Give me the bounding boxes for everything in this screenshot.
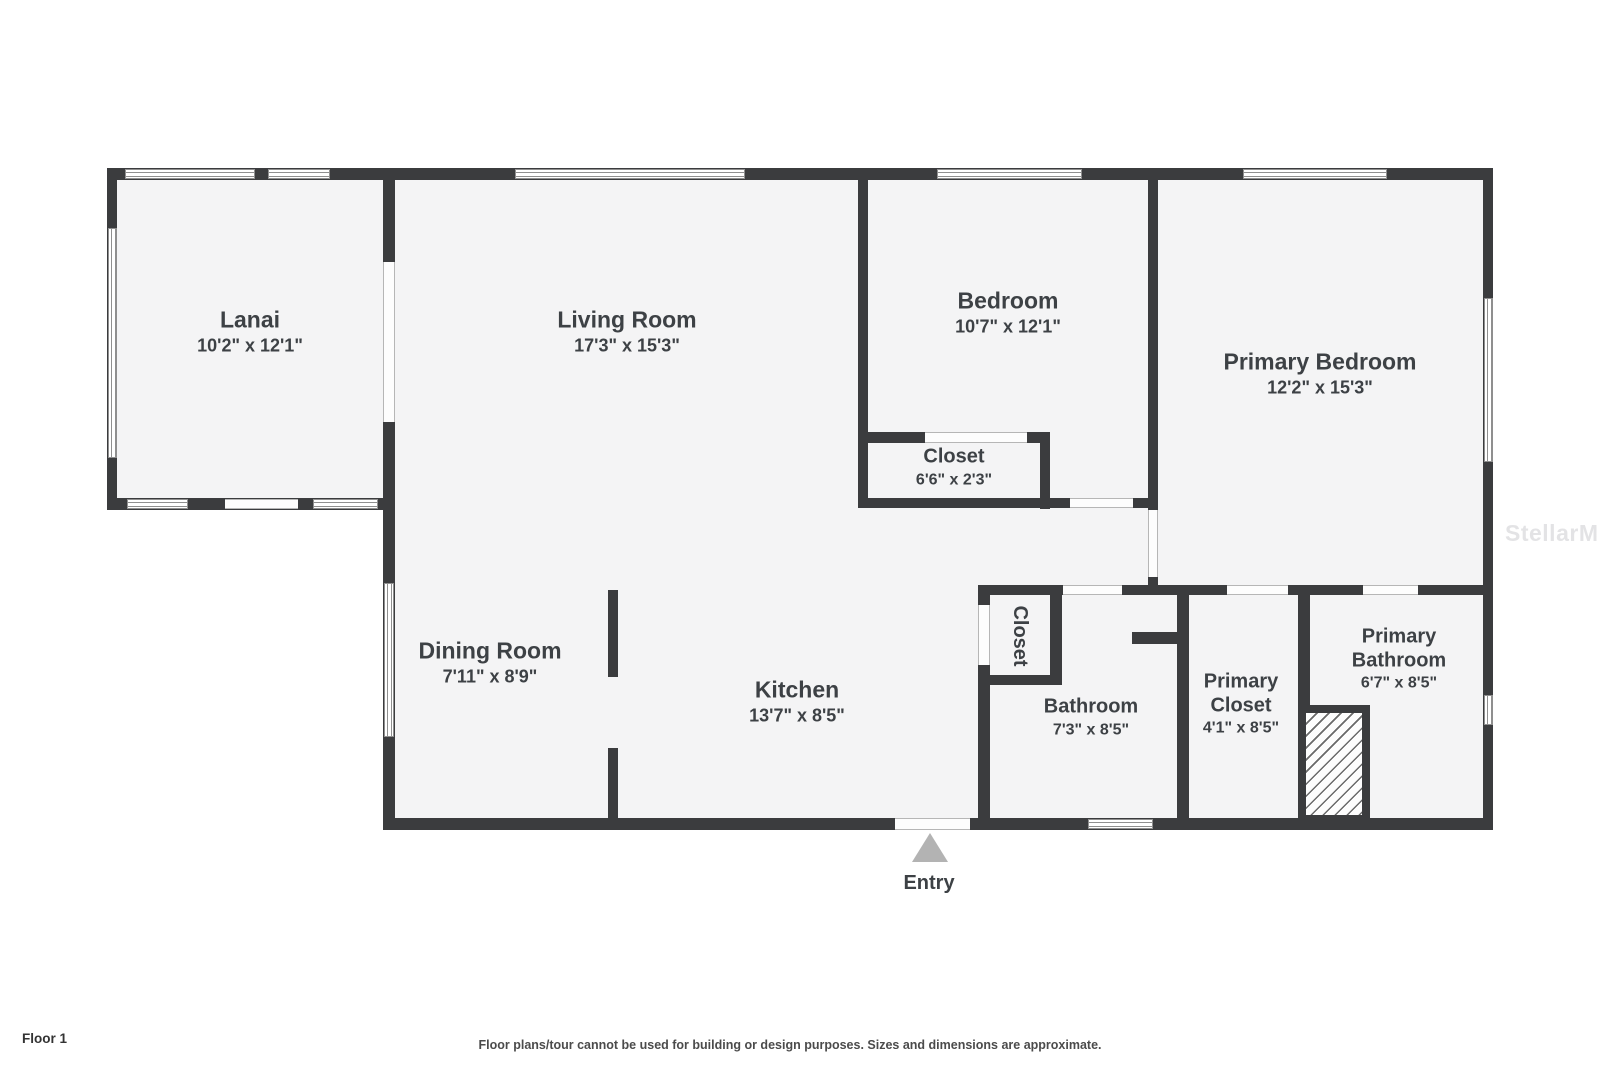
bedroom-name: Bedroom	[955, 287, 1061, 314]
primary-bedroom-dims: 12'2" x 15'3"	[1223, 375, 1416, 399]
bathroom-door	[1063, 585, 1122, 595]
dining-window-left	[384, 583, 394, 737]
shower-hatch	[1298, 705, 1370, 823]
primary-bathroom-name: Primary Bathroom	[1334, 626, 1464, 673]
living-room-dims: 17'3" x 15'3"	[557, 333, 696, 357]
wall-bathroom-stub	[1132, 632, 1178, 644]
bathroom-dims: 7'3" x 8'5"	[1044, 719, 1138, 741]
bathroom-window-bottom	[1088, 819, 1153, 829]
entry-label: Entry	[903, 872, 954, 895]
wall-living-bedroom	[858, 180, 868, 508]
lanai-label: Lanai 10'2" x 12'1"	[197, 306, 303, 357]
lanai-window-top-2	[268, 169, 330, 179]
primary-bedroom-name: Primary Bedroom	[1223, 348, 1416, 375]
entry-opening	[895, 818, 970, 830]
dining-room-name: Dining Room	[418, 637, 561, 664]
stellar-mls-watermark: StellarMLS	[1505, 520, 1600, 547]
floor-plan: Lanai 10'2" x 12'1" Living Room 17'3" x …	[0, 0, 1600, 1066]
bedroom-door	[1070, 498, 1133, 508]
bathroom-label: Bathroom 7'3" x 8'5"	[1044, 695, 1138, 740]
kitchen-dims: 13'7" x 8'5"	[749, 703, 845, 727]
primary-closet-door	[1227, 585, 1288, 595]
lanai-slider-opening	[383, 262, 395, 422]
primary-bedroom-door	[1148, 510, 1158, 577]
living-room-name: Living Room	[557, 306, 696, 333]
bedroom-dims: 10'7" x 12'1"	[955, 314, 1061, 338]
bedroom-closet-label: Closet 6'6" x 2'3"	[916, 445, 992, 490]
kitchen-label: Kitchen 13'7" x 8'5"	[749, 676, 845, 727]
wall-east	[1483, 168, 1493, 830]
primary-closet-name: Primary Closet	[1186, 671, 1296, 718]
primary-bedroom-label: Primary Bedroom 12'2" x 15'3"	[1223, 348, 1416, 399]
living-window-top	[515, 169, 745, 179]
entry-arrow-icon	[912, 833, 948, 862]
wall-kitchen-stub-lower	[608, 748, 618, 818]
wall-hallcloset-right	[1050, 585, 1062, 685]
wall-bedroom-primary	[1148, 180, 1158, 510]
lanai-window-top-1	[125, 169, 255, 179]
hall-closet-door	[978, 605, 990, 665]
living-room-label: Living Room 17'3" x 15'3"	[557, 306, 696, 357]
hall-closet-label: Closet	[1007, 605, 1031, 666]
hall-closet-name: Closet	[1007, 605, 1031, 666]
lanai-bottom-window-2	[313, 499, 378, 509]
bedroom-closet-name: Closet	[916, 445, 992, 469]
lanai-window-left	[108, 228, 117, 458]
dining-room-dims: 7'11" x 8'9"	[418, 664, 561, 688]
bedroom-window-top	[937, 169, 1082, 179]
primary-bathroom-dims: 6'7" x 8'5"	[1334, 673, 1464, 695]
primary-bathroom-door	[1363, 585, 1418, 595]
wall-kitchen-stub-upper	[608, 590, 618, 677]
disclaimer-text: Floor plans/tour cannot be used for buil…	[478, 1038, 1101, 1052]
primary-bedroom-window-top	[1243, 169, 1387, 179]
primary-closet-label: Primary Closet 4'1" x 8'5"	[1186, 671, 1296, 740]
lanai-name: Lanai	[197, 306, 303, 333]
primary-bedroom-window-right	[1484, 298, 1493, 462]
bedroom-label: Bedroom 10'7" x 12'1"	[955, 287, 1061, 338]
primary-closet-dims: 4'1" x 8'5"	[1186, 718, 1296, 740]
bedroom-closet-door	[925, 432, 1027, 443]
bathroom-name: Bathroom	[1044, 695, 1138, 719]
primary-bathroom-window-right	[1484, 695, 1493, 725]
lanai-bottom-opening	[225, 499, 298, 509]
floor-number-label: Floor 1	[22, 1031, 67, 1046]
bedroom-closet-dims: 6'6" x 2'3"	[916, 469, 992, 491]
lanai-dims: 10'2" x 12'1"	[197, 333, 303, 357]
dining-room-label: Dining Room 7'11" x 8'9"	[418, 637, 561, 688]
lanai-bottom-window-1	[127, 499, 188, 509]
kitchen-name: Kitchen	[749, 676, 845, 703]
primary-bathroom-label: Primary Bathroom 6'7" x 8'5"	[1334, 626, 1464, 695]
